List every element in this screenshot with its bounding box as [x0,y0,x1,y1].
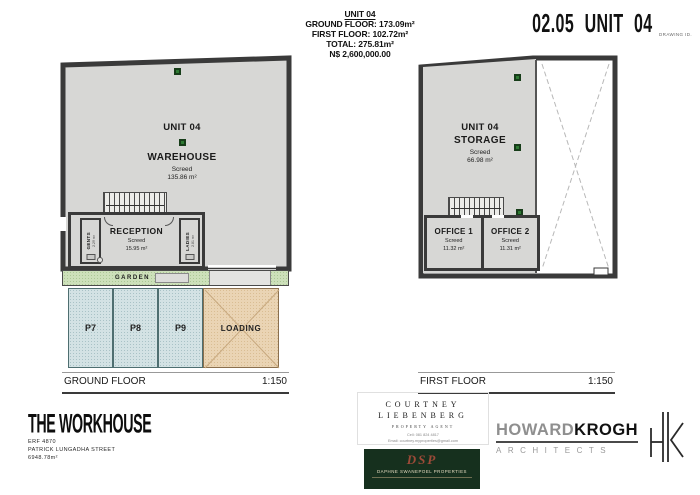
agent-email: Email: courtney.myproperties@gmail.com [358,439,488,445]
developer-logo: DSP DAPHNE SWANEPOEL PROPERTIES [364,449,480,489]
ground-floor-title: GROUND FLOOR [64,376,146,387]
drawing-sheet: UNIT 04 GROUND FLOOR: 173.09m² FIRST FLO… [0,0,700,495]
reception-labels: RECEPTION Screed 15.95 m² [101,226,172,252]
office-1-finish: Screed [427,238,481,244]
parking-bay-label: P8 [130,323,141,333]
storage-unit-label: UNIT 04 [428,122,532,133]
ladies-area: 2.81 m² [191,235,195,247]
gents-label: GENTS [86,232,91,250]
door-swing-icon [165,217,174,226]
drawing-number: 02.05 UNIT 04 [533,10,653,40]
ladies-label: LADIES [185,232,190,251]
first-floor-area-line: FIRST FLOOR: 102.72m² [275,29,445,39]
developer-rule [372,477,472,478]
storage-area: 66.98 m² [428,157,532,164]
reception-name: RECEPTION [101,226,172,236]
loading-bay: LOADING [203,288,279,368]
green-marker-icon [514,74,521,81]
green-marker-icon [174,68,181,75]
office-2-name: OFFICE 2 [484,227,538,236]
office-1-name: OFFICE 1 [427,227,481,236]
dsp-monogram-icon: DSP [364,452,480,467]
office-1-area: 11.32 m² [427,246,481,252]
project-site-area: 6948.78m² [28,454,198,462]
toilet-fixture-icon [185,254,194,260]
architect-name: HOWARDKROGH [496,421,638,443]
agent-last-name: LIEBENBERG [358,410,488,421]
gents-area: 2.29 m² [92,235,96,247]
office-2-area: 11.31 m² [484,246,538,252]
reception-finish: Screed [101,238,172,244]
architect-subtitle: ARCHITECTS [496,446,648,455]
first-floor-title: FIRST FLOOR [420,376,486,387]
storage-finish: Screed [428,149,532,156]
loading-label: LOADING [221,324,261,333]
architect-name-part2: KROGH [574,421,638,439]
office-1-room: OFFICE 1 Screed 11.32 m² [427,218,481,268]
garden-strip: GARDEN [62,270,289,286]
property-agent-block: COURTNEY LIEBENBERG PROPERTY AGENT Cell:… [357,392,489,445]
door-opening [492,215,504,218]
garden-label: GARDEN [115,275,150,281]
parking-bay-p8: P8 [113,288,158,368]
warehouse-room-name: WAREHOUSE [118,152,246,163]
warehouse-unit-label: UNIT 04 [118,122,246,133]
first-floor-scalebar: FIRST FLOOR 1:150 [418,372,615,394]
door-opening [461,215,473,218]
paved-path [209,271,271,285]
warehouse-finish: Screed [118,166,246,173]
offices-block: OFFICE 1 Screed 11.32 m² OFFICE 2 Screed… [424,215,540,271]
ground-floor-plan: UNIT 04 WAREHOUSE Screed 135.86 m² GENTS… [60,54,292,394]
ladies-room: LADIES 2.81 m² [179,218,200,264]
storage-labels: UNIT 04 STORAGE Screed 66.98 m² [428,122,532,164]
office-2-room: OFFICE 2 Screed 11.31 m² [481,218,538,268]
reception-room: GENTS 2.29 m² LADIES 2.81 m² RECEPTION S… [68,212,205,269]
drawing-id-label: DRAWING ID. [659,32,692,40]
drawing-title-block: 02.05 UNIT 04 DRAWING ID. [500,8,692,40]
parking-bay-label: P9 [175,323,186,333]
total-area-line: TOTAL: 275.81m² [275,39,445,49]
project-name: THE WORKHOUSE [28,410,156,449]
unit-summary-title: UNIT 04 [275,9,445,19]
ground-floor-scale: 1:150 [262,376,287,387]
first-floor-plan: UNIT 04 STORAGE Screed 66.98 m² OFFICE 1… [418,54,618,394]
reception-area: 15.95 m² [101,246,172,252]
first-floor-scale: 1:150 [588,376,613,387]
unit-summary-block: UNIT 04 GROUND FLOOR: 173.09m² FIRST FLO… [275,9,445,59]
architect-block: HOWARDKROGH ARCHITECTS [496,421,648,455]
hk-monogram-icon [643,409,689,465]
door-swing-icon [104,217,113,226]
office-2-finish: Screed [484,238,538,244]
storage-room-name: STORAGE [428,135,532,146]
garden-planter [155,273,189,283]
basin-icon [97,257,103,263]
project-block: THE WORKHOUSE ERF 4870 PATRICK LUNGADHA … [28,410,198,462]
warehouse-labels: UNIT 04 WAREHOUSE Screed 135.86 m² [118,122,246,181]
parking-bay-p7: P7 [68,288,113,368]
ground-floor-scalebar: GROUND FLOOR 1:150 [62,372,289,394]
warehouse-area: 135.86 m² [118,174,246,181]
green-marker-icon [179,139,186,146]
agent-first-name: COURTNEY [358,399,488,410]
developer-name: DAPHNE SWANEPOEL PROPERTIES [364,469,480,474]
architect-name-part1: HOWARD [496,421,574,439]
agent-contact: Cell: 081 824 4817 Email: courtney.mypro… [358,433,488,444]
ground-floor-area-line: GROUND FLOOR: 173.09m² [275,19,445,29]
parking-bay-label: P7 [85,323,96,333]
parking-bay-p9: P9 [158,288,203,368]
agent-role: PROPERTY AGENT [358,424,488,429]
toilet-fixture-icon [86,254,95,260]
